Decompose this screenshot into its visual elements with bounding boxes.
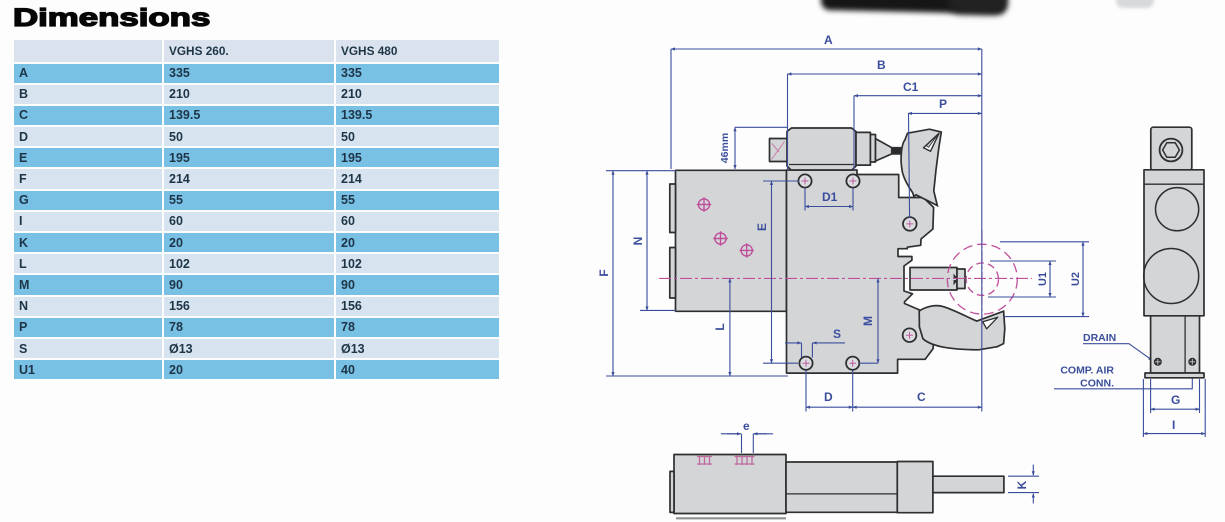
svg-text:I: I — [1172, 418, 1175, 432]
svg-text:M: M — [861, 316, 875, 326]
svg-text:U1: U1 — [1037, 272, 1049, 286]
svg-text:DRAIN: DRAIN — [1083, 332, 1116, 344]
svg-text:A: A — [824, 33, 833, 47]
svg-text:C: C — [917, 390, 926, 404]
svg-text:L: L — [713, 323, 727, 330]
svg-text:F: F — [597, 269, 611, 276]
svg-text:e: e — [743, 419, 750, 433]
svg-text:46mm: 46mm — [719, 133, 731, 163]
svg-text:G: G — [1171, 393, 1180, 407]
svg-text:COMP. AIR: COMP. AIR — [1060, 365, 1114, 377]
svg-text:CONN.: CONN. — [1080, 378, 1114, 390]
svg-text:S: S — [833, 327, 841, 341]
svg-text:B: B — [877, 58, 886, 72]
svg-text:C1: C1 — [903, 80, 919, 94]
svg-text:U2: U2 — [1070, 272, 1082, 286]
svg-text:P: P — [939, 97, 947, 111]
svg-text:E: E — [755, 223, 769, 231]
svg-text:K: K — [1015, 480, 1029, 489]
svg-text:N: N — [631, 237, 645, 246]
svg-text:D1: D1 — [822, 190, 838, 204]
svg-text:D: D — [824, 390, 833, 404]
